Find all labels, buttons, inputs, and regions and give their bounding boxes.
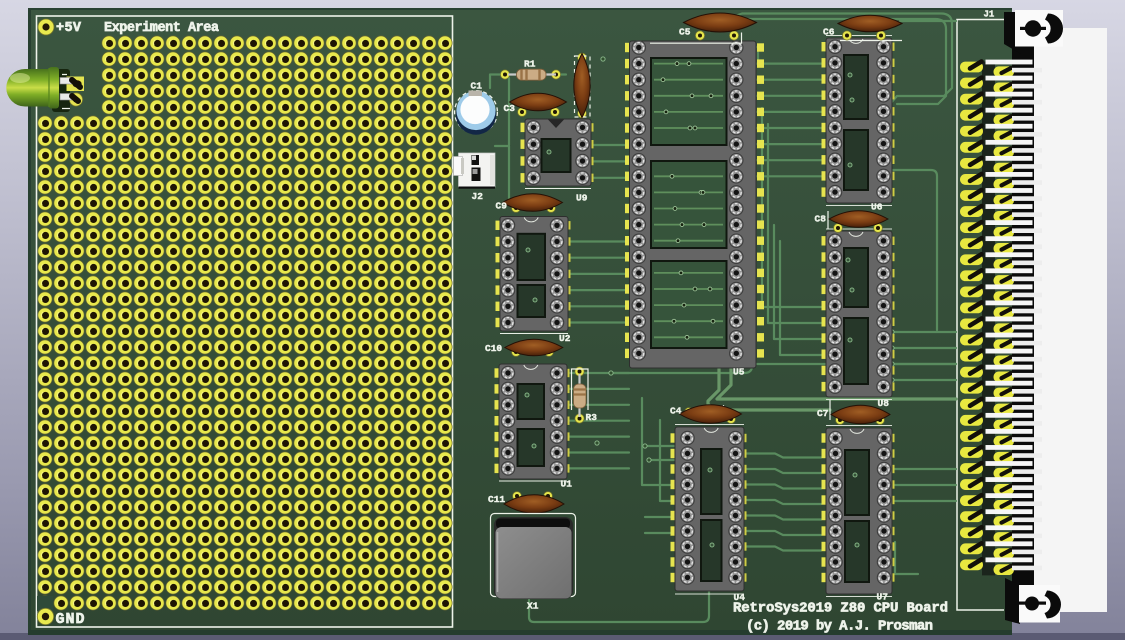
svg-text:X1: X1: [527, 601, 539, 612]
svg-text:C10: C10: [485, 343, 502, 354]
svg-text:R3: R3: [586, 412, 598, 423]
svg-text:RetroSys2019 Z80 CPU Board: RetroSys2019 Z80 CPU Board: [733, 601, 948, 617]
svg-text:U9: U9: [576, 193, 588, 204]
svg-text:C9: C9: [496, 201, 508, 212]
svg-text:J1: J1: [984, 10, 995, 20]
svg-text:C7: C7: [817, 408, 829, 419]
svg-text:+5V: +5V: [56, 21, 82, 36]
svg-text:C1: C1: [471, 81, 483, 92]
svg-text:U5: U5: [733, 367, 745, 378]
svg-text:C5: C5: [679, 27, 691, 38]
svg-text:(c) 2019 by A.J. Prosman: (c) 2019 by A.J. Prosman: [746, 619, 933, 635]
svg-text:C8: C8: [815, 214, 827, 225]
svg-text:GND: GND: [56, 611, 85, 628]
svg-text:C6: C6: [823, 27, 835, 38]
svg-text:C3: C3: [504, 103, 516, 114]
svg-text:R1: R1: [524, 59, 536, 70]
svg-text:J2: J2: [472, 191, 484, 202]
svg-text:U1: U1: [561, 479, 573, 490]
svg-text:C11: C11: [488, 494, 505, 505]
svg-text:U8: U8: [878, 398, 890, 409]
svg-text:Experiment Area: Experiment Area: [104, 21, 219, 36]
svg-text:U2: U2: [559, 333, 571, 344]
svg-text:C4: C4: [670, 406, 682, 417]
svg-text:U6: U6: [871, 202, 883, 213]
